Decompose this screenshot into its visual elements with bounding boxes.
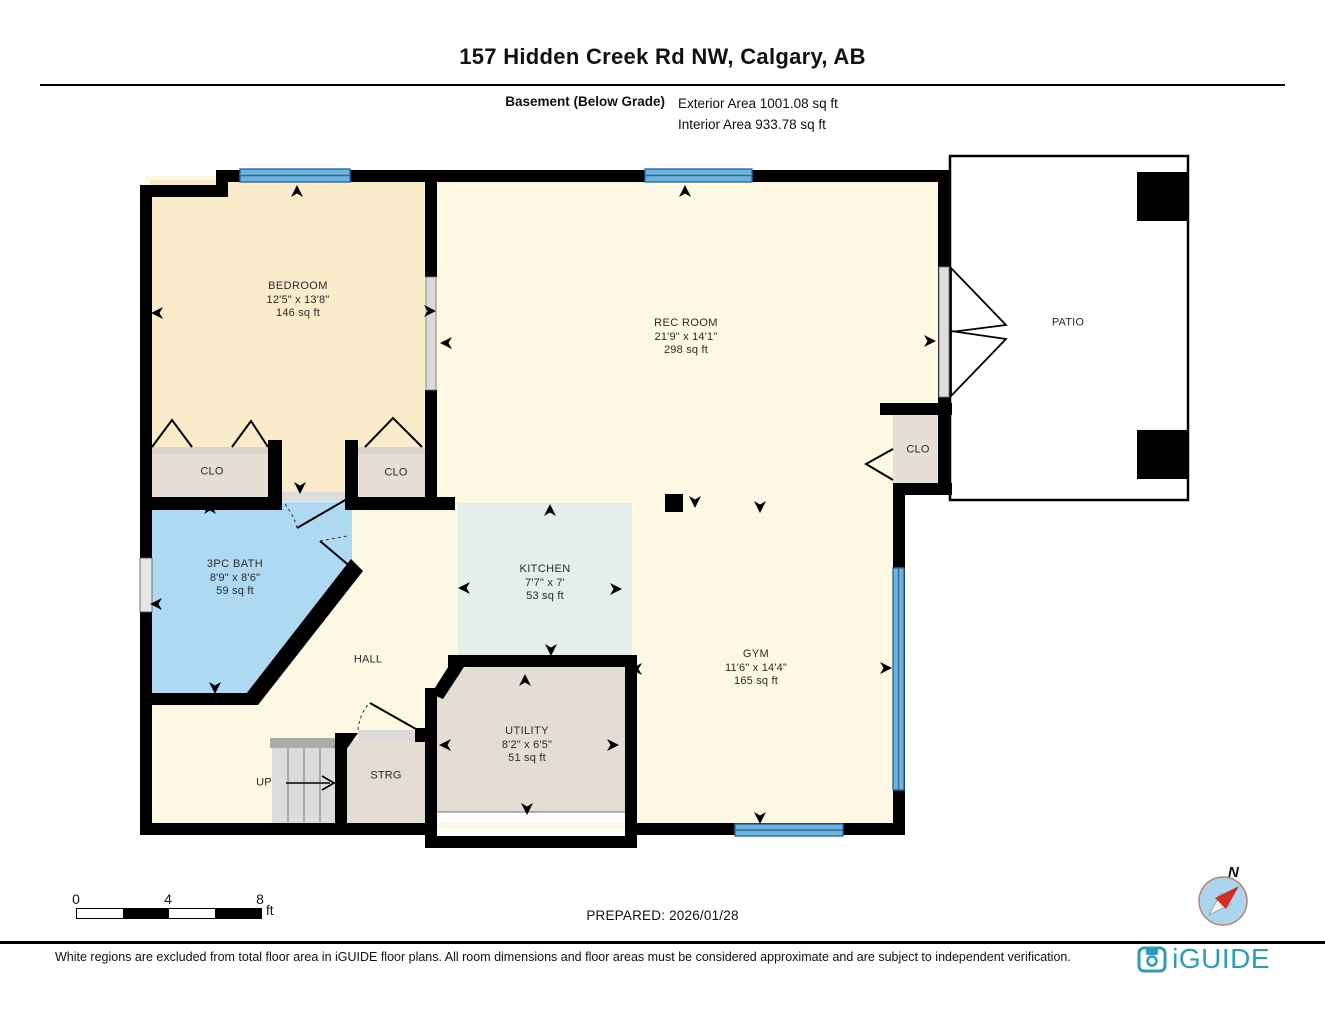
patio-pillar [1137, 172, 1188, 221]
room-dims: 8'2" x 6'5" [502, 738, 552, 752]
room-label-utility: UTILITY 8'2" x 6'5" 51 sq ft [502, 725, 552, 766]
room-name: BEDROOM [267, 280, 330, 294]
room-area: 146 sq ft [267, 307, 330, 321]
room-name: REC ROOM [654, 317, 718, 331]
structural-post [665, 494, 683, 512]
room-area: 165 sq ft [725, 675, 787, 689]
room-label-gym: GYM 11'6" x 14'4" 165 sq ft [725, 648, 787, 689]
floor-plan-page: 157 Hidden Creek Rd NW, Calgary, AB Base… [0, 0, 1325, 1024]
room-dims: 21'9" x 14'1" [654, 330, 718, 344]
footer-divider [0, 941, 1325, 944]
closet-label: CLO [384, 466, 407, 480]
room-name: UTILITY [502, 725, 552, 739]
room-label-hall: HALL [354, 653, 382, 667]
floor-plan-drawing [0, 0, 1325, 1024]
iguide-logo-text: iGUIDE [1172, 943, 1270, 975]
room-dims: 12'5" x 13'8" [267, 293, 330, 307]
prepared-date: PREPARED: 2026/01/28 [0, 908, 1325, 923]
room-area: 51 sq ft [502, 752, 552, 766]
iguide-logo: iGUIDE [1137, 943, 1270, 975]
closet-label: CLO [200, 465, 223, 479]
room-label-bath: 3PC BATH 8'9" x 8'6" 59 sq ft [207, 558, 263, 599]
room-label-kitchen: KITCHEN 7'7" x 7' 53 sq ft [519, 563, 570, 604]
disclaimer-text: White regions are excluded from total fl… [55, 950, 1071, 964]
room-area: 59 sq ft [207, 585, 263, 599]
room-name: KITCHEN [519, 563, 570, 577]
room-dims: 8'9" x 8'6" [207, 571, 263, 585]
room-dims: 11'6" x 14'4" [725, 661, 787, 675]
room-area: 298 sq ft [654, 344, 718, 358]
iguide-logo-icon [1137, 944, 1167, 974]
closet-label: CLO [906, 443, 929, 457]
scale-tick-0: 0 [64, 891, 88, 907]
room-label-patio: PATIO [1052, 316, 1084, 330]
room-area: 53 sq ft [519, 590, 570, 604]
stairs-up-label: UP [256, 776, 272, 790]
scale-tick-4: 4 [156, 891, 180, 907]
room-name: GYM [725, 648, 787, 662]
room-name: 3PC BATH [207, 558, 263, 572]
room-dims: 7'7" x 7' [519, 576, 570, 590]
stairs [270, 738, 337, 823]
room-label-storage: STRG [370, 769, 401, 783]
room-label-bedroom: BEDROOM 12'5" x 13'8" 146 sq ft [267, 280, 330, 321]
room-label-rec-room: REC ROOM 21'9" x 14'1" 298 sq ft [654, 317, 718, 358]
patio-pillar [1137, 430, 1188, 479]
compass-north-label: N [1228, 864, 1239, 881]
